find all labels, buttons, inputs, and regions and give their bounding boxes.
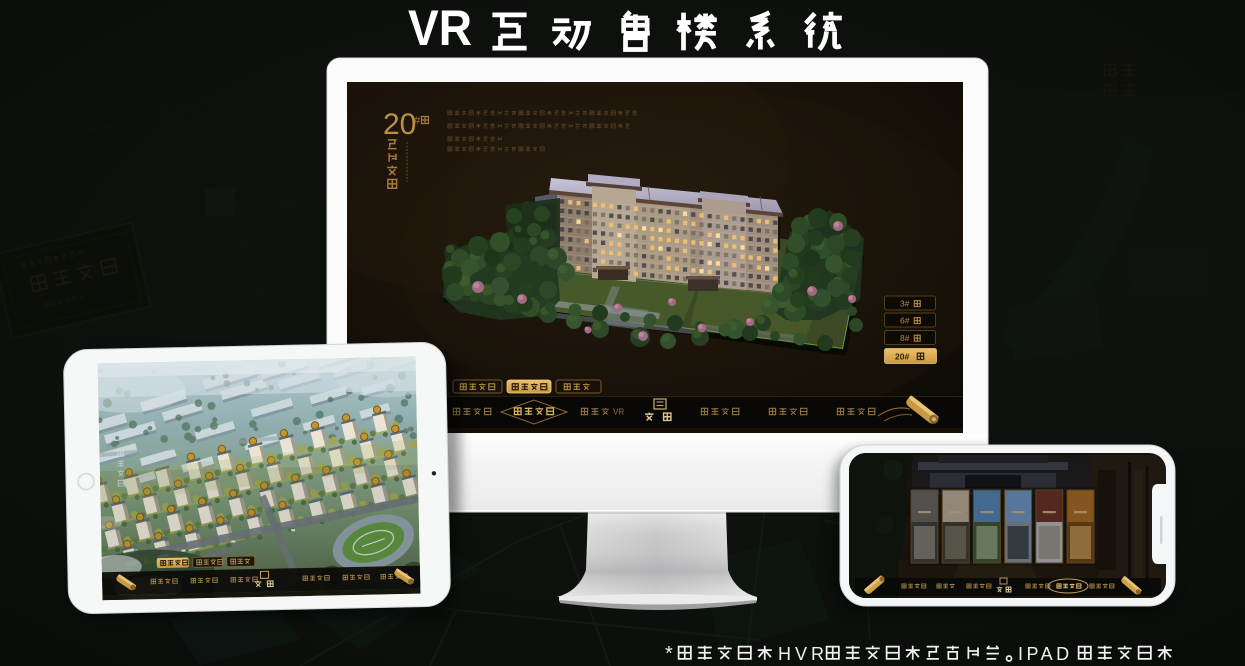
- svg-text:#: #: [414, 115, 421, 127]
- svg-text:20#: 20#: [895, 352, 909, 362]
- svg-text:IPAD: IPAD: [1018, 644, 1073, 664]
- svg-text:VR: VR: [408, 0, 472, 56]
- svg-text:20: 20: [383, 108, 416, 141]
- svg-text:8#: 8#: [900, 333, 910, 343]
- svg-text:VR: VR: [613, 408, 624, 417]
- svg-text:HVR: HVR: [778, 644, 828, 664]
- svg-text:*: *: [665, 643, 673, 665]
- svg-text:3#: 3#: [900, 299, 910, 309]
- svg-text:6#: 6#: [900, 316, 910, 326]
